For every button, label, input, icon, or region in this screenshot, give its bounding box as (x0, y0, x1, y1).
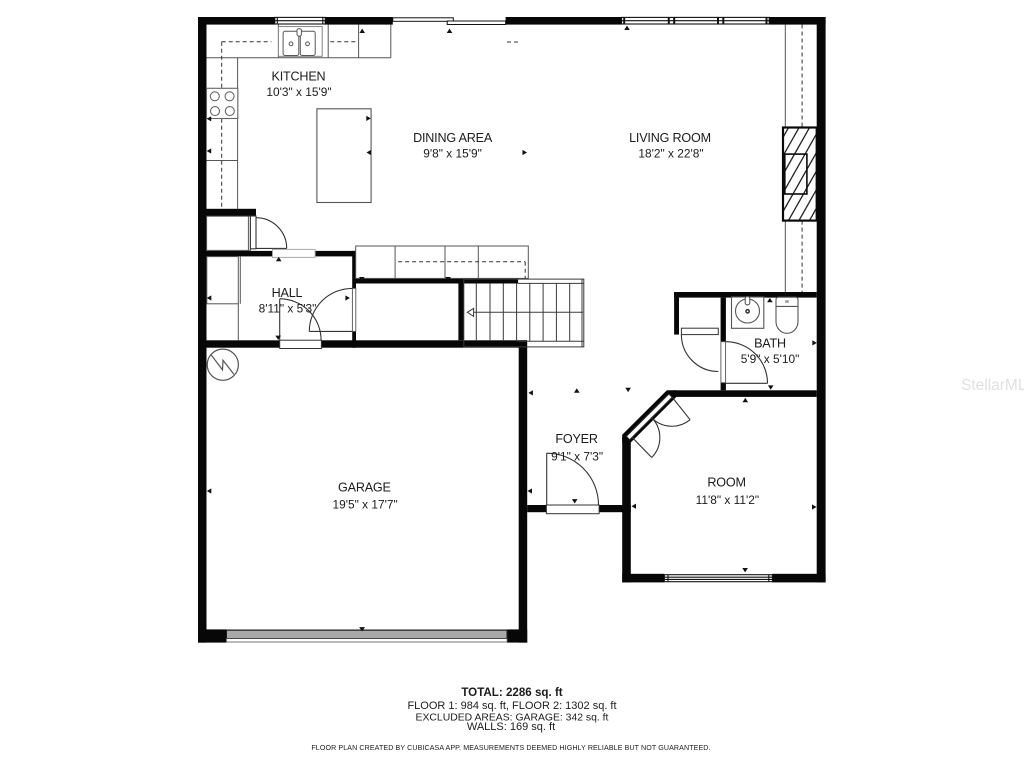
svg-text:9'1" x 7'3": 9'1" x 7'3" (551, 450, 603, 464)
svg-text:8'11" x 5'3": 8'11" x 5'3" (259, 302, 317, 316)
svg-text:ROOM: ROOM (707, 476, 745, 490)
svg-text:FOYER: FOYER (555, 432, 597, 446)
svg-text:19'5" x 17'7": 19'5" x 17'7" (332, 498, 397, 512)
svg-text:StellarMLS: StellarMLS (961, 377, 1024, 394)
svg-text:BATH: BATH (754, 337, 786, 351)
svg-text:KITCHEN: KITCHEN (272, 70, 326, 84)
svg-text:TOTAL: 2286 sq. ft: TOTAL: 2286 sq. ft (461, 686, 562, 699)
svg-text:9'8" x 15'9": 9'8" x 15'9" (423, 147, 482, 161)
svg-text:18'2" x 22'8": 18'2" x 22'8" (638, 147, 703, 161)
svg-text:FLOOR 1: 984 sq. ft, FLOOR 2:: FLOOR 1: 984 sq. ft, FLOOR 2: 1302 sq. f… (407, 700, 616, 712)
svg-text:FLOOR PLAN CREATED BY CUBICASA: FLOOR PLAN CREATED BY CUBICASA APP. MEAS… (311, 744, 710, 752)
svg-text:11'8" x 11'2": 11'8" x 11'2" (696, 493, 759, 507)
svg-text:WALLS: 169 sq. ft: WALLS: 169 sq. ft (467, 721, 555, 733)
svg-text:10'3" x 15'9": 10'3" x 15'9" (266, 85, 331, 99)
svg-text:HALL: HALL (272, 286, 303, 300)
svg-text:LIVING ROOM: LIVING ROOM (629, 131, 711, 145)
svg-text:5'9" x 5'10": 5'9" x 5'10" (741, 352, 800, 366)
svg-text:GARAGE: GARAGE (338, 481, 391, 495)
svg-text:DINING AREA: DINING AREA (413, 131, 493, 145)
